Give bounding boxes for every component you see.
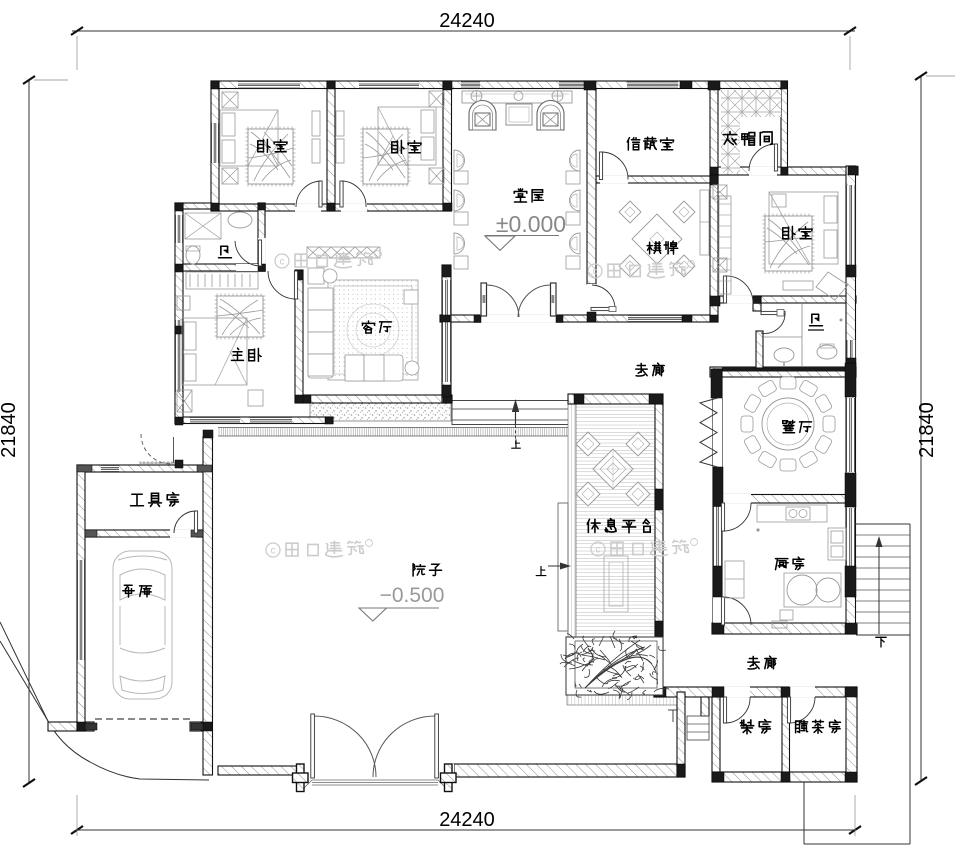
- svg-text:c: c: [271, 546, 276, 557]
- svg-text:c: c: [280, 257, 285, 268]
- svg-text:24240: 24240: [439, 809, 495, 831]
- svg-text:21840: 21840: [0, 402, 20, 458]
- svg-text:c: c: [596, 545, 601, 556]
- svg-text:±0.000: ±0.000: [496, 211, 566, 237]
- svg-text:c: c: [593, 267, 598, 278]
- svg-text:−0.500: −0.500: [380, 584, 445, 607]
- svg-text:24240: 24240: [439, 10, 495, 32]
- svg-text:21840: 21840: [916, 402, 938, 458]
